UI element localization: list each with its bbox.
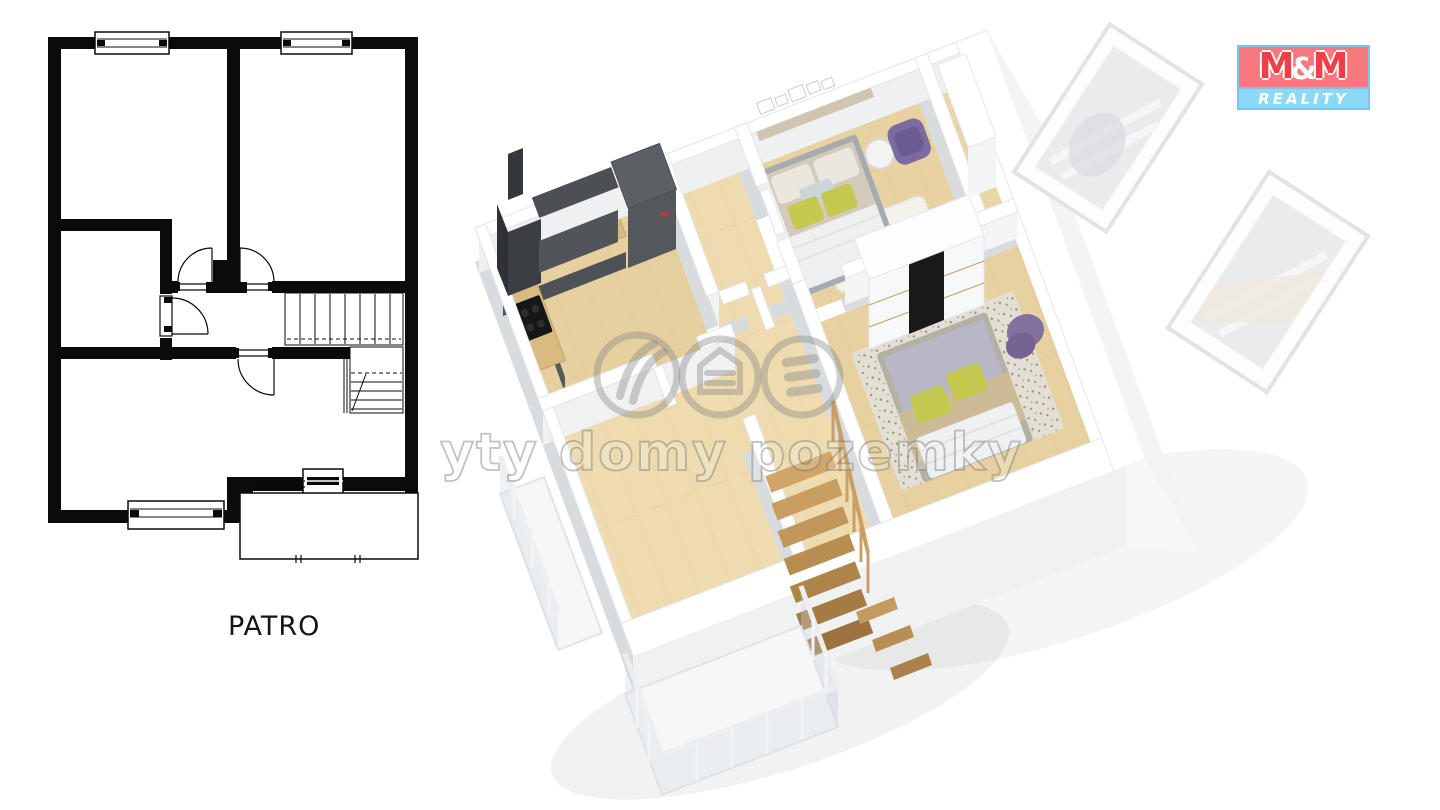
logo-m-right: M xyxy=(1313,49,1349,85)
window-top-left xyxy=(95,32,169,54)
brand-logo: M & M REALITY xyxy=(1237,45,1370,110)
door-stops xyxy=(164,282,274,358)
brand-logo-bottom: REALITY xyxy=(1237,89,1370,110)
logo-m-left: M xyxy=(1259,49,1295,85)
oven-display xyxy=(660,212,669,216)
window-frame-3d-2 xyxy=(1168,172,1368,392)
stairs-upper-flight xyxy=(285,293,403,345)
brand-logo-top: M & M xyxy=(1237,45,1370,89)
floor-plan-2d xyxy=(0,0,440,580)
watermark-text: byty domy pozemky xyxy=(440,423,1023,483)
floor-label: PATRO xyxy=(228,611,320,642)
floor-plan-3d-render: byty domy pozemky xyxy=(440,0,1440,810)
window-top-right xyxy=(281,32,352,54)
terrace-outline xyxy=(240,493,418,563)
logo-reality-text: REALITY xyxy=(1258,90,1349,108)
window-bottom-left xyxy=(128,501,224,529)
logo-ampersand: & xyxy=(1290,55,1316,85)
stairs-lower-flight xyxy=(344,347,403,413)
real-estate-floorplan-image: PATRO xyxy=(0,0,1440,810)
